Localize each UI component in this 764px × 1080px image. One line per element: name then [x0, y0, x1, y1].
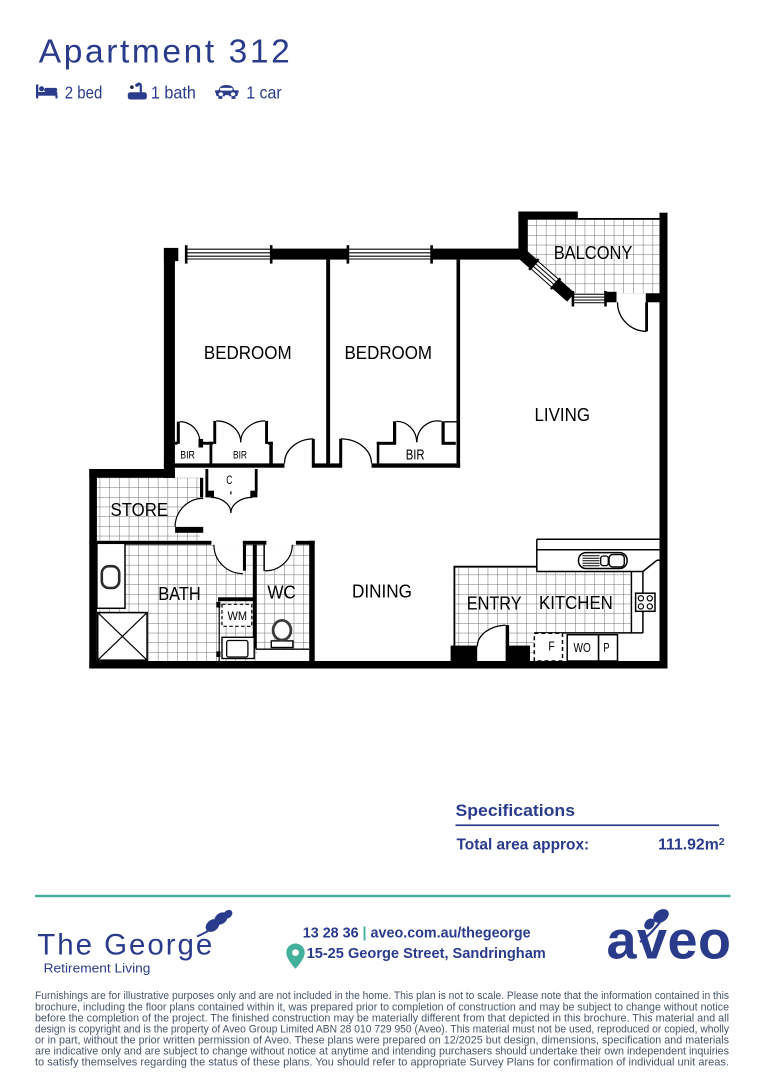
svg-text:13 28 36 | aveo.com.au/thegeor: 13 28 36 | aveo.com.au/thegeorge: [303, 926, 531, 942]
svg-text:BEDROOM: BEDROOM: [345, 342, 433, 363]
svg-text:KITCHEN: KITCHEN: [539, 592, 613, 613]
svg-text:1 car: 1 car: [246, 82, 282, 102]
svg-text:F: F: [548, 638, 554, 653]
svg-text:WM: WM: [228, 609, 248, 623]
svg-text:BATH: BATH: [158, 583, 201, 604]
svg-text:BIR: BIR: [406, 447, 425, 464]
svg-text:WO: WO: [574, 640, 591, 655]
svg-text:15-25 George Street, Sandringh: 15-25 George Street, Sandringham: [307, 945, 546, 962]
svg-text:BEDROOM: BEDROOM: [204, 342, 292, 363]
svg-text:Specifications: Specifications: [456, 801, 576, 820]
svg-text:BIR: BIR: [180, 449, 195, 461]
svg-text:BIR: BIR: [233, 449, 247, 461]
svg-text:BALCONY: BALCONY: [554, 242, 633, 263]
svg-text:Total area approx:: Total area approx:: [457, 836, 590, 853]
svg-text:1 bath: 1 bath: [151, 82, 196, 102]
svg-text:C: C: [226, 474, 232, 487]
svg-text:111.92m2: 111.92m2: [658, 836, 725, 854]
svg-text:ENTRY: ENTRY: [467, 593, 522, 614]
svg-text:P: P: [603, 640, 609, 655]
svg-text:WC: WC: [267, 582, 296, 603]
svg-text:DINING: DINING: [352, 581, 412, 602]
svg-text:LIVING: LIVING: [535, 404, 591, 425]
svg-text:Retirement Living: Retirement Living: [44, 962, 151, 976]
svg-text:to satisfy themselves regardin: to satisfy themselves regarding the stat…: [35, 1056, 729, 1068]
svg-text:The George: The George: [37, 929, 212, 962]
svg-text:Apartment 312: Apartment 312: [39, 34, 290, 71]
svg-text:aveo: aveo: [607, 911, 732, 971]
svg-text:Furnishings are for illustrati: Furnishings are for illustrative purpose…: [35, 990, 729, 1002]
svg-text:2 bed: 2 bed: [65, 82, 103, 102]
svg-text:STORE: STORE: [111, 499, 169, 520]
